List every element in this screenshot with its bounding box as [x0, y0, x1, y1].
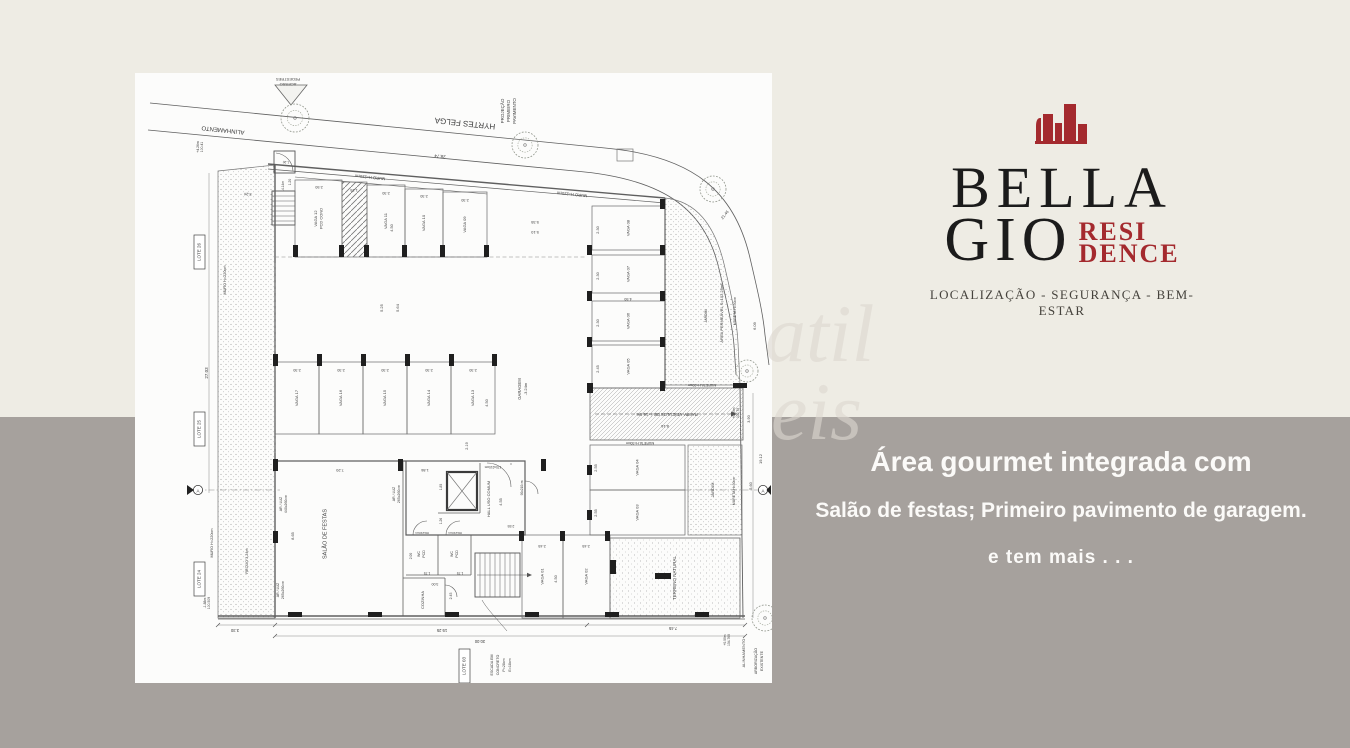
plan-annotation: JARDIM: [704, 309, 708, 322]
column-marker: [402, 245, 407, 257]
street-wall: [268, 164, 665, 203]
column-marker: [273, 459, 278, 471]
plan-annotation: 2.45: [449, 593, 453, 600]
column-marker: [655, 573, 671, 579]
plan-annotation: 1.20: [282, 160, 289, 165]
plan-annotation: MURETA H=30cm: [733, 297, 737, 326]
plan-annotation: 80x210cm: [415, 531, 429, 535]
plan-annotation: 8.16: [660, 424, 669, 429]
plan-annotation: 2.30: [461, 198, 468, 202]
column-marker: [660, 199, 665, 209]
plan-annotation: 170x210cm: [484, 465, 501, 469]
plan-annotation: 1.20: [288, 179, 292, 186]
plan-annotation: E=18cm: [508, 658, 512, 671]
column-marker: [587, 510, 592, 520]
brand-tagline: LOCALIZAÇÃO - SEGURANÇA - BEM-ESTAR: [912, 287, 1212, 319]
plan-annotation: 7.20: [335, 468, 344, 473]
column-marker: [605, 531, 610, 541]
plan-annotation: 4.50: [390, 224, 394, 231]
column-marker: [560, 531, 565, 541]
floor-plan-image: VAGA 12PCD CONDVAGA 11VAGA 10VAGA 09VAGA…: [135, 73, 772, 683]
plan-annotation: 2.55: [508, 524, 515, 528]
plan-annotation: 2.30: [596, 272, 600, 279]
parking-stall-label: VAGA 08: [626, 219, 631, 236]
parking-stall-label: VAGA 13: [470, 389, 475, 406]
plan-annotation: A: [761, 489, 764, 494]
parking-stall-label: VAGA 09: [462, 216, 467, 233]
plan-annotation: ALINHAMENTO: [741, 639, 746, 668]
column-marker: [405, 354, 410, 366]
marketing-block: Área gourmet integrada com Salão de fest…: [772, 446, 1350, 569]
permeable-area: [665, 198, 740, 385]
plan-annotation: 1.75: [424, 571, 431, 575]
plan-annotation: 4.50: [485, 399, 489, 406]
column-marker: [273, 531, 278, 543]
plan-annotation: 2.55: [594, 509, 598, 516]
parking-stall-label: VAGA 17: [294, 389, 299, 406]
column-marker: [398, 459, 403, 471]
plan-annotation: 2.30: [425, 368, 432, 372]
plan-annotation: 90x210cm: [520, 480, 524, 495]
plan-annotation: 4.50: [554, 575, 558, 582]
plan-annotation: 7.45: [668, 626, 677, 631]
plan-annotation: MURO H=220cm: [210, 528, 214, 557]
column-marker: [605, 612, 619, 617]
access-arrow-icon: [275, 85, 307, 105]
parking-stall-label: VAGA 10: [421, 214, 426, 231]
column-marker: [541, 459, 546, 471]
plan-annotation: ACESSO: [280, 82, 297, 87]
plan-annotation: 2.50: [315, 185, 322, 189]
plan-annotation: AR / LUZ: [392, 486, 396, 501]
plan-annotation: PRIMEIRO: [506, 99, 511, 122]
plan-annotation: 2.45: [538, 544, 545, 548]
parking-stall-label: VAGA 05: [626, 358, 631, 375]
plan-annotation: 100.41: [200, 142, 204, 152]
column-marker: [587, 465, 592, 475]
column-marker: [733, 383, 747, 388]
marketing-line3: e tem mais . . .: [772, 547, 1350, 569]
plan-annotation: WC: [417, 551, 421, 557]
plan-annotation: HALL USO COMUM: [486, 481, 491, 517]
plan-annotation: AR / LUZ: [276, 582, 280, 597]
plan-annotation: 265x260cm: [281, 581, 285, 599]
plan-annotation: SALÃO DE FESTAS: [321, 509, 328, 559]
section-marker-a-right: [758, 485, 771, 495]
parking-stall-label: VAGA 14: [426, 389, 431, 406]
plan-annotation: 19.25: [436, 628, 447, 633]
column-marker: [368, 612, 382, 617]
plan-annotation: -3.24m: [523, 382, 528, 395]
plan-annotation: 2.30: [596, 226, 600, 233]
marketing-line1: Área gourmet integrada com: [772, 446, 1350, 478]
plan-annotation: MURETA H=30cm: [732, 477, 736, 506]
plan-annotation: 3.30: [230, 628, 239, 633]
plan-annotation: 19.12: [758, 453, 763, 464]
column-marker: [610, 560, 616, 574]
brand-name: BELLA GIO RESI DENCE: [912, 161, 1212, 265]
plan-annotation: 4.55: [499, 498, 503, 505]
parking-stall-label: VAGA 16: [338, 389, 343, 406]
plan-annotation: 1.75: [457, 571, 464, 575]
plan-annotation: 1.26: [439, 518, 443, 525]
plan-annotation: 1.85: [439, 484, 443, 491]
column-marker: [695, 612, 709, 617]
plan-annotation: 2.00: [409, 553, 413, 560]
brand-suffix-line2: DENCE: [1079, 243, 1180, 265]
column-marker: [587, 245, 592, 255]
plan-annotation: -4.14m: [281, 181, 285, 192]
plan-annotation: 100.509: [207, 597, 211, 609]
column-marker: [364, 245, 369, 257]
plan-annotation: 5.60: [749, 482, 753, 489]
elevator-shaft: [447, 472, 477, 510]
plan-annotation: 265x260cm: [397, 485, 401, 503]
plan-annotation: P=28cm: [502, 658, 506, 671]
parking-stall-label: VAGA 12: [313, 210, 318, 227]
plan-annotation: MURETA H=30cm: [626, 441, 655, 445]
column-marker: [293, 245, 298, 257]
column-marker: [525, 612, 539, 617]
plan-annotation: 1.86: [421, 468, 428, 472]
plan-annotation: ÁREA PERMEÁVEL S=102,23m²: [719, 283, 724, 343]
parking-stall-label: VAGA 04: [635, 459, 640, 476]
plan-annotation: 2.30: [596, 319, 600, 326]
plan-annotation: 5.25: [379, 303, 384, 312]
column-marker: [660, 337, 665, 347]
parking-stall-label: VAGA 03: [635, 504, 640, 521]
plan-annotation: 5.64: [395, 303, 400, 312]
plan-annotation: 4.50: [624, 297, 631, 301]
column-marker: [339, 245, 344, 257]
plan-annotation: 2.30: [293, 368, 300, 372]
brand-block: BELLA GIO RESI DENCE LOCALIZAÇÃO - SEGUR…: [912, 102, 1212, 319]
plan-annotation: 3.90: [747, 415, 751, 422]
column-marker: [449, 354, 454, 366]
plan-annotation: 2.30: [381, 368, 388, 372]
column-marker: [361, 354, 366, 366]
plan-annotation: A: [196, 489, 199, 494]
plan-annotation: RECUO 3.24m: [245, 548, 249, 573]
plan-annotation: JARDIM: [710, 483, 715, 498]
column-marker: [519, 531, 524, 541]
plan-annotation: 5.35: [530, 220, 539, 225]
plan-annotation: MURO H=220cm: [354, 173, 386, 181]
plan-annotation: 30.00: [474, 639, 485, 644]
lot-label: LOTE 24: [197, 570, 202, 589]
plan-annotation: TERRENO NATURAL: [672, 556, 677, 600]
plan-annotation: 2.30: [382, 191, 389, 195]
lot-label: LOTE 26: [197, 243, 202, 262]
plan-annotation: WC: [450, 551, 454, 557]
column-marker: [660, 291, 665, 301]
column-marker: [492, 354, 497, 366]
plan-annotation: ARBORIZAÇÃO: [753, 648, 758, 674]
page: VAGA 12PCD CONDVAGA 11VAGA 10VAGA 09VAGA…: [0, 0, 1350, 748]
plan-annotation: 8.65: [291, 532, 295, 539]
column-marker: [587, 337, 592, 347]
column-marker: [660, 245, 665, 255]
parking-stall-label: VAGA 06: [626, 312, 631, 329]
plan-annotation: 2.19: [465, 442, 469, 449]
lot-label: LOTE 25: [197, 420, 202, 439]
plan-annotation: 2.45: [582, 544, 589, 548]
plan-annotation: EXISTENTE: [760, 650, 764, 671]
plan-annotation: PAVIMENTO: [512, 98, 517, 124]
plan-annotation: CONCRETO: [496, 655, 500, 676]
plan-annotation: 3.00: [432, 582, 439, 586]
plan-annotation: ESCADA EM: [490, 655, 494, 676]
plan-annotation: 80x210cm: [448, 531, 462, 535]
column-marker: [273, 354, 278, 366]
plan-annotation: 2.55: [594, 464, 598, 471]
plan-annotation: MURETA H=30cm: [688, 383, 717, 387]
column-marker: [440, 245, 445, 257]
parking-stall-label: VAGA 01: [540, 568, 545, 585]
plan-annotation: ALINHAMENTO: [201, 124, 245, 135]
plan-annotation: 3.24: [244, 192, 252, 197]
parking-stall-label: VAGA 15: [382, 389, 387, 406]
parking-stall-label: PCD COND: [319, 208, 324, 229]
column-marker: [317, 354, 322, 366]
column-marker: [587, 291, 592, 301]
buildings-logo-icon: [1033, 102, 1091, 146]
plan-annotation: GARAGEM: [517, 378, 522, 400]
column-marker: [484, 245, 489, 257]
plan-annotation: COZINHA: [420, 591, 425, 609]
plan-annotation: 5.10: [530, 230, 539, 235]
plan-annotation: 2.30: [469, 368, 476, 372]
plan-annotation: AR / LUZ: [279, 496, 283, 511]
plan-annotation: 21.46: [720, 209, 731, 221]
plan-annotation: 2.30: [420, 194, 427, 198]
column-marker: [288, 612, 302, 617]
tree-icon: [512, 132, 538, 158]
parking-stall-label: VAGA 07: [626, 265, 631, 282]
plan-annotation: 102.79: [736, 408, 740, 418]
plan-annotation: 104.769: [727, 634, 731, 646]
lot-label: LOTE 03: [462, 657, 467, 676]
floor-plan-svg: VAGA 12PCD CONDVAGA 11VAGA 10VAGA 09VAGA…: [135, 73, 772, 683]
marketing-line2: Salão de festas; Primeiro pavimento de g…: [772, 499, 1350, 523]
plan-annotation: PROJEÇÃO: [499, 98, 505, 123]
column-marker: [588, 383, 593, 393]
section-marker-a-left: [187, 485, 203, 495]
parking-stall-label: VAGA 02: [584, 568, 589, 585]
street-fixture: [617, 149, 633, 161]
tree-icon: [752, 605, 772, 631]
plan-annotation: PEDESTRES: [276, 77, 301, 82]
plan-annotation: RAMPA VEÍCULOS DB. i=16,6%: [636, 412, 698, 417]
brand-name-line2: GIO: [944, 215, 1072, 265]
plan-annotation: 6.09: [752, 321, 757, 330]
plan-annotation: PCD: [422, 550, 426, 558]
plan-annotation: 440x260cm: [284, 495, 288, 513]
pcd-hatch-area: [342, 182, 367, 257]
column-marker: [445, 612, 459, 617]
parking-stall-label: VAGA 11: [383, 212, 388, 229]
plan-annotation: 2.45: [596, 365, 600, 372]
plan-annotation: 2.30: [337, 368, 344, 372]
plan-annotation: PCD: [455, 550, 459, 558]
plan-annotation: 28.74: [434, 153, 446, 159]
plan-annotation: HYRTES FELGA: [434, 116, 496, 131]
plan-annotation: 1.25: [350, 188, 357, 192]
plan-annotation: MURO H=220cm: [223, 265, 227, 294]
column-marker: [660, 381, 665, 391]
plan-annotation: 27.03: [204, 367, 209, 379]
